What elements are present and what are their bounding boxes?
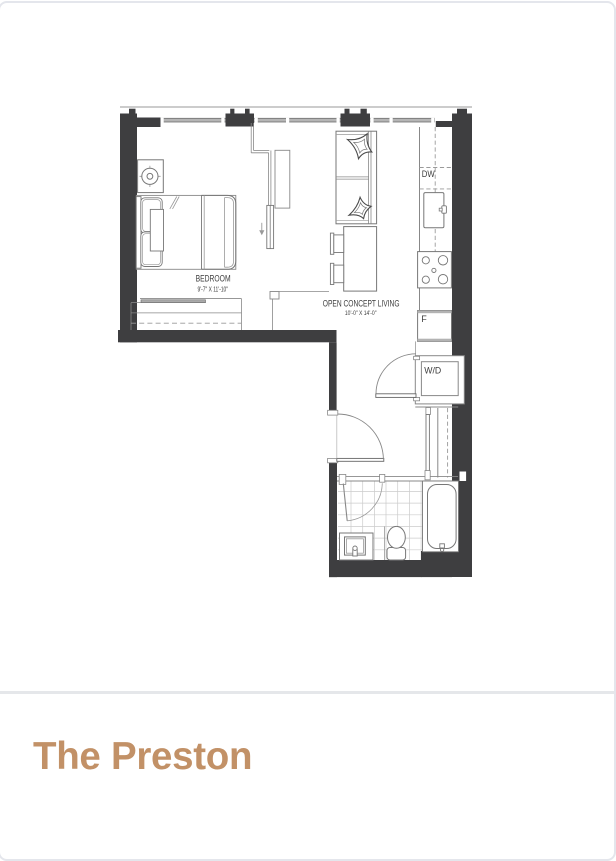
svg-text:DW: DW [422, 169, 435, 179]
svg-text:F: F [421, 314, 427, 324]
svg-text:BEDROOM: BEDROOM [196, 274, 231, 284]
svg-text:10'-0" X 14'-0": 10'-0" X 14'-0" [345, 311, 377, 317]
svg-text:9'-7" X 11'-10": 9'-7" X 11'-10" [198, 286, 229, 293]
svg-text:OPEN CONCEPT LIVING: OPEN CONCEPT LIVING [323, 298, 400, 309]
svg-text:W/D: W/D [424, 365, 441, 375]
